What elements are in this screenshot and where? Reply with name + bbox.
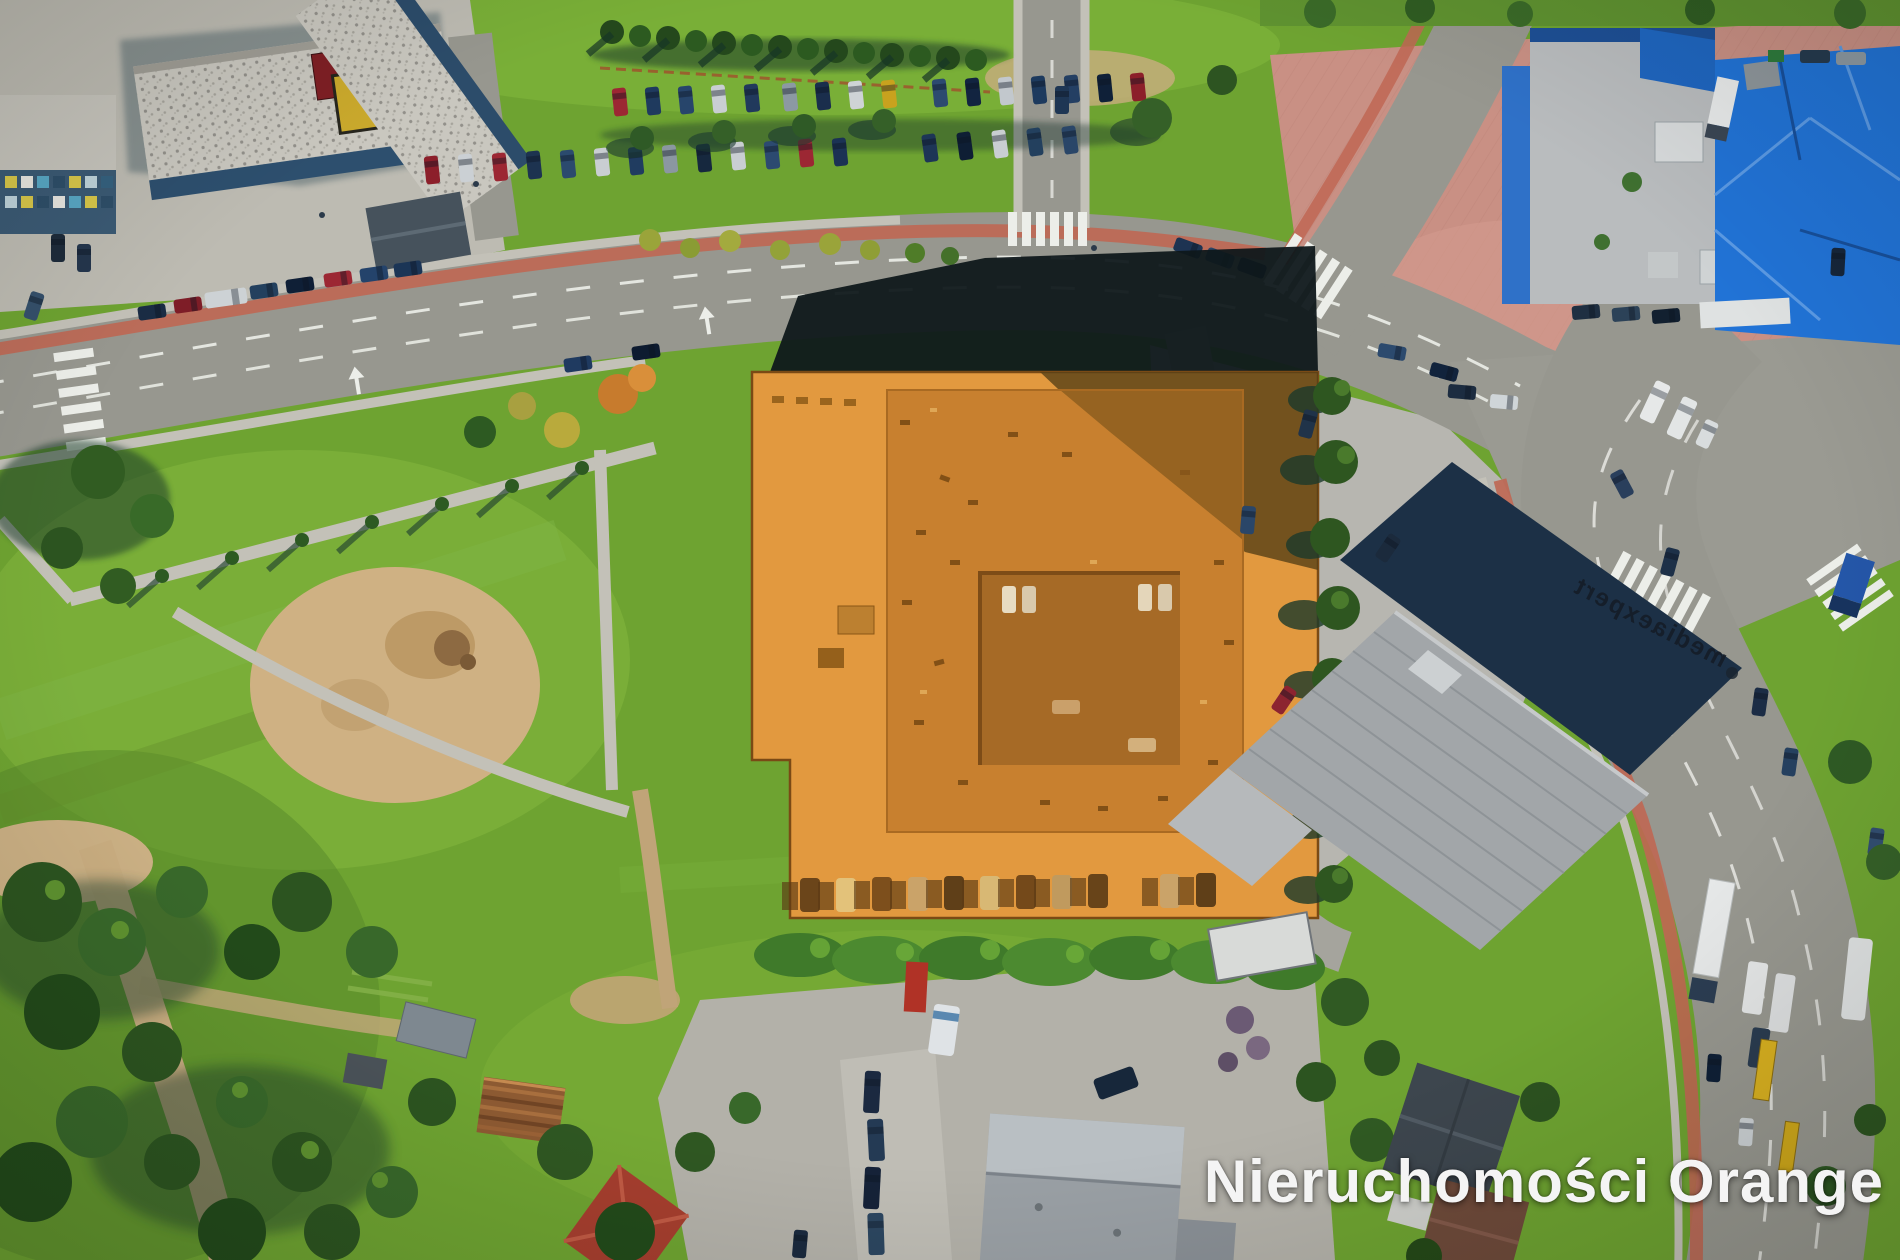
aerial-scene: mediaexpert <box>0 0 1900 1260</box>
photo-vignette <box>0 0 1900 1260</box>
watermark: Nieruchomości Orange <box>1204 1147 1884 1216</box>
aerial-photo-real-estate: mediaexpert <box>0 0 1900 1260</box>
